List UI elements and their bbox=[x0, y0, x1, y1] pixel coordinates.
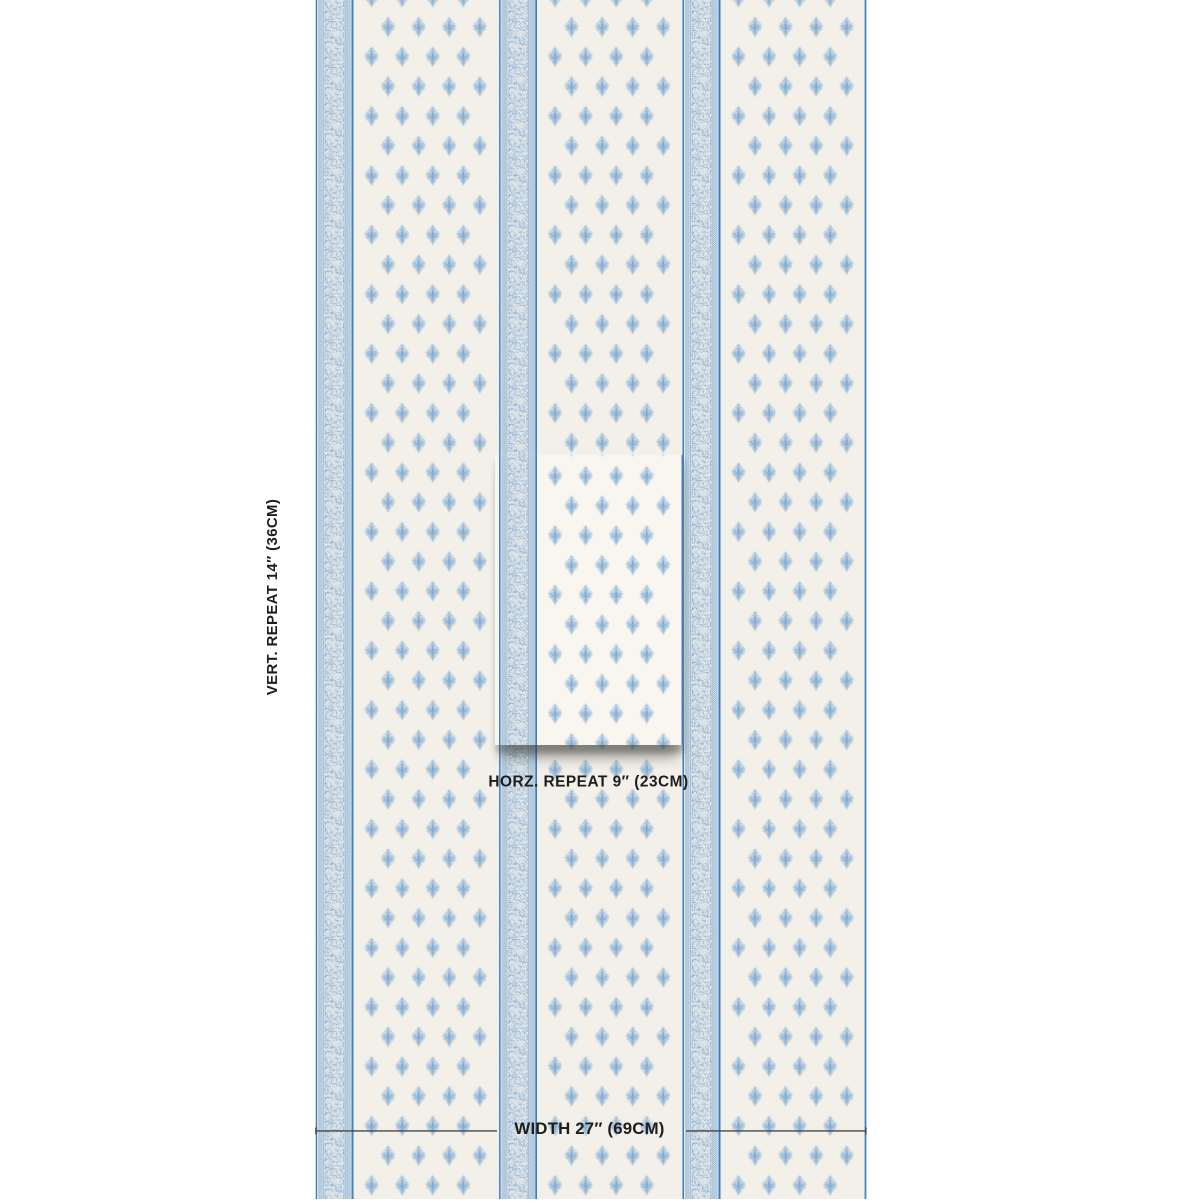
svg-text:VERT. REPEAT 14″ (36CM): VERT. REPEAT 14″ (36CM) bbox=[265, 499, 281, 695]
svg-text:HORZ. REPEAT 9″ (23CM): HORZ. REPEAT 9″ (23CM) bbox=[488, 774, 688, 791]
svg-text:WIDTH 27″ (69CM): WIDTH 27″ (69CM) bbox=[514, 1119, 664, 1138]
